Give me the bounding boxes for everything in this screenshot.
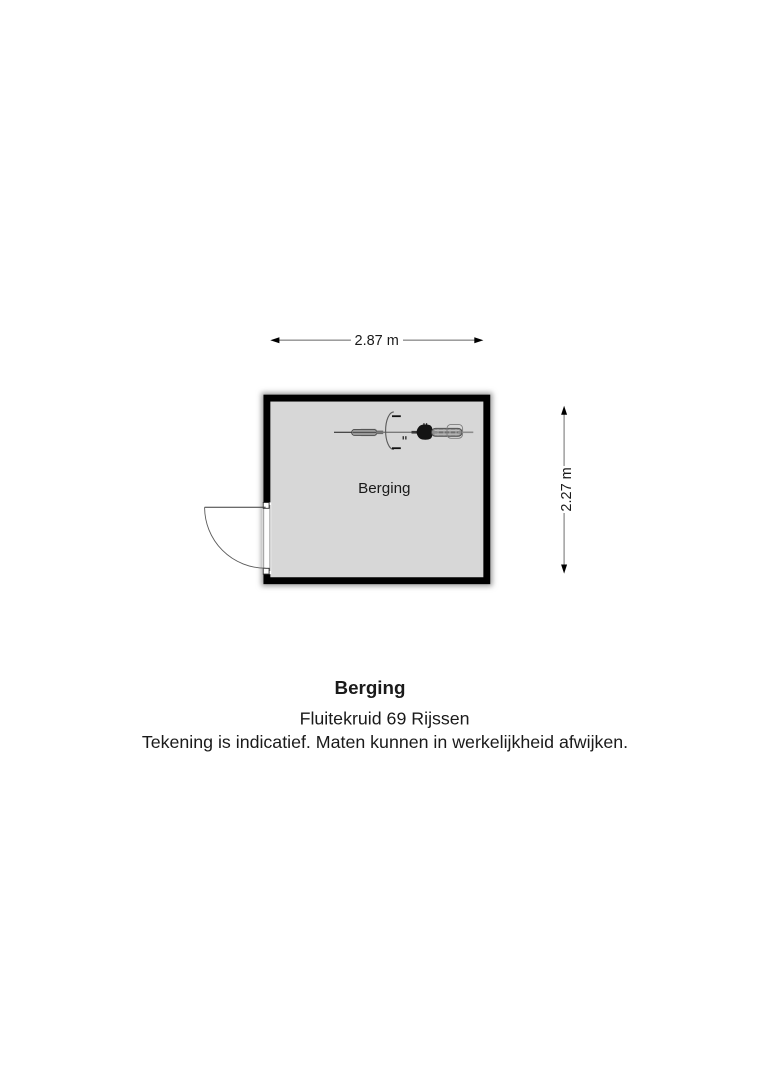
svg-text:Berging: Berging [358,480,410,497]
svg-text:2.87 m: 2.87 m [355,333,399,349]
svg-text:Berging: Berging [335,677,406,698]
svg-text:Fluitekruid 69 Rijssen: Fluitekruid 69 Rijssen [300,709,470,729]
svg-text:Tekening is indicatief. Maten: Tekening is indicatief. Maten kunnen in … [142,732,628,752]
svg-text:2.27 m: 2.27 m [559,467,575,511]
